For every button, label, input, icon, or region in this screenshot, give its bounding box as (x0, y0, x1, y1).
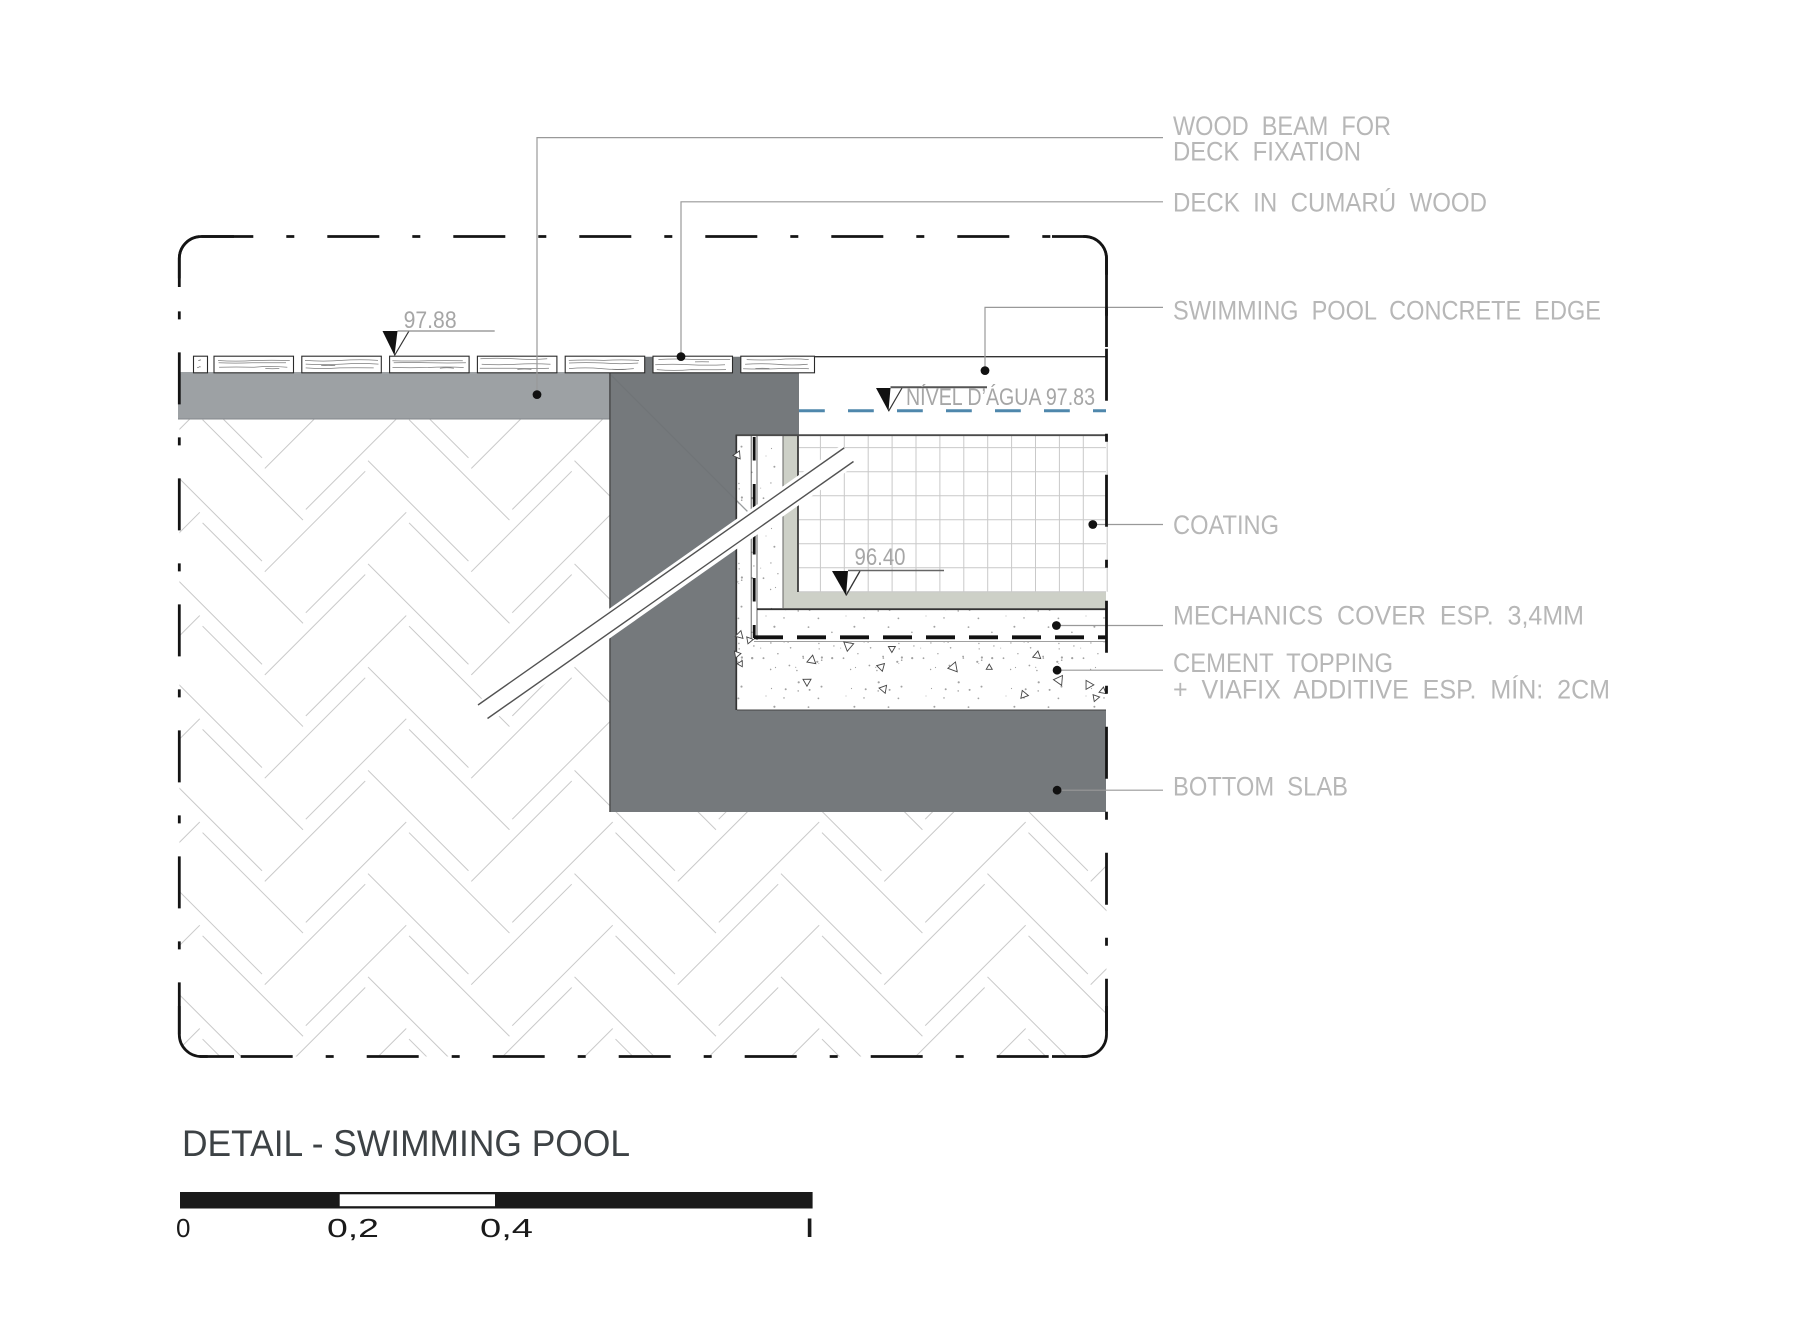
svg-text:NÍVEL D’ÁGUA 97.83: NÍVEL D’ÁGUA 97.83 (906, 384, 1095, 411)
svg-text:0,4: 0,4 (480, 1213, 533, 1243)
svg-text:COATING: COATING (1173, 510, 1279, 540)
svg-text:96.40: 96.40 (855, 544, 906, 571)
svg-text:CEMENT TOPPING: CEMENT TOPPING (1173, 648, 1393, 678)
svg-text:97.88: 97.88 (404, 307, 457, 334)
svg-text:MECHANICS COVER ESP. 3,4MM: MECHANICS COVER ESP. 3,4MM (1173, 601, 1584, 631)
svg-text:DECK FIXATION: DECK FIXATION (1173, 137, 1361, 167)
svg-text:SWIMMING POOL CONCRETE EDGE: SWIMMING POOL CONCRETE EDGE (1173, 296, 1601, 326)
svg-text:0: 0 (176, 1213, 190, 1243)
svg-text:BOTTOM SLAB: BOTTOM SLAB (1173, 772, 1348, 802)
svg-text:+ VIAFIX ADDITIVE ESP. MÍN: + VIAFIX ADDITIVE ESP. MÍN: 2CM (1173, 675, 1610, 705)
svg-text:0,2: 0,2 (327, 1213, 379, 1243)
svg-text:DECK IN CUMARÚ WOOD: DECK IN CUMARÚ WOOD (1173, 187, 1487, 218)
svg-text:DETAIL - SWIMMING POOL: DETAIL - SWIMMING POOL (182, 1123, 630, 1164)
